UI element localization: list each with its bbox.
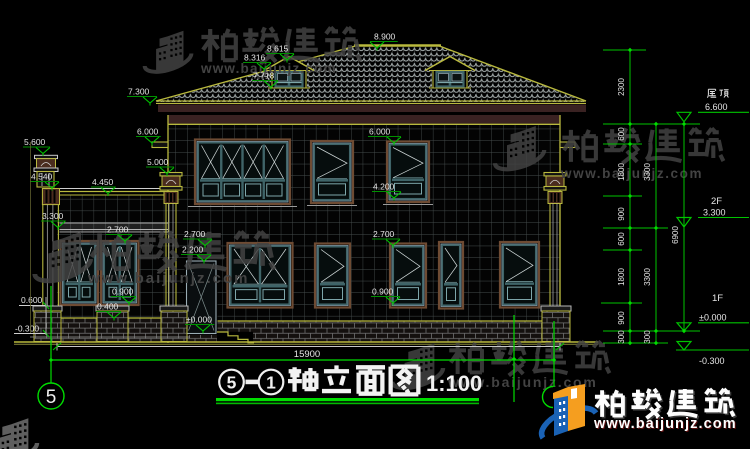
svg-text:-0.300: -0.300 bbox=[699, 356, 725, 366]
svg-text:5.000: 5.000 bbox=[147, 157, 169, 167]
svg-text:2.700: 2.700 bbox=[184, 229, 206, 239]
svg-text:3.300: 3.300 bbox=[703, 208, 726, 218]
svg-text:www.baijunjz.com: www.baijunjz.com bbox=[560, 166, 703, 181]
svg-text:600: 600 bbox=[617, 127, 626, 141]
svg-text:www.baijunjz.com: www.baijunjz.com bbox=[87, 270, 249, 287]
svg-text:±0.000: ±0.000 bbox=[186, 315, 212, 325]
svg-text:www.baijunjz.com: www.baijunjz.com bbox=[593, 416, 737, 432]
svg-text:0.600: 0.600 bbox=[21, 295, 43, 305]
svg-text:6.000: 6.000 bbox=[137, 127, 159, 137]
svg-text:4.540: 4.540 bbox=[31, 172, 53, 182]
svg-text:900: 900 bbox=[617, 311, 626, 325]
svg-text:3300: 3300 bbox=[643, 268, 652, 286]
svg-text:8.900: 8.900 bbox=[374, 32, 396, 42]
svg-text:7.718: 7.718 bbox=[253, 71, 275, 81]
svg-text:900: 900 bbox=[617, 207, 626, 221]
svg-text:1: 1 bbox=[266, 373, 276, 393]
svg-text:2.700: 2.700 bbox=[107, 225, 129, 235]
svg-text:5.600: 5.600 bbox=[24, 137, 46, 147]
svg-text:2.700: 2.700 bbox=[373, 229, 395, 239]
svg-text:2F: 2F bbox=[711, 196, 722, 207]
svg-text:0.900: 0.900 bbox=[112, 287, 134, 297]
svg-text:600: 600 bbox=[617, 232, 626, 246]
svg-text:5: 5 bbox=[227, 373, 237, 393]
svg-text:8.316: 8.316 bbox=[244, 53, 266, 63]
svg-text:5: 5 bbox=[46, 387, 57, 408]
svg-text:0.400: 0.400 bbox=[97, 302, 119, 312]
svg-text:15900: 15900 bbox=[294, 349, 320, 360]
svg-text:-0.300: -0.300 bbox=[15, 324, 39, 334]
svg-text:300: 300 bbox=[643, 330, 652, 344]
svg-text:1:100: 1:100 bbox=[426, 371, 482, 396]
svg-text:300: 300 bbox=[617, 330, 626, 344]
svg-text:2.200: 2.200 bbox=[182, 245, 204, 255]
svg-text:7.300: 7.300 bbox=[128, 87, 150, 97]
svg-text:1F: 1F bbox=[712, 293, 723, 304]
svg-text:8.615: 8.615 bbox=[267, 44, 289, 54]
svg-text:4.200: 4.200 bbox=[373, 182, 395, 192]
svg-text:0.900: 0.900 bbox=[372, 287, 394, 297]
svg-text:1800: 1800 bbox=[617, 268, 626, 286]
svg-text:3300: 3300 bbox=[643, 163, 652, 181]
svg-text:6.000: 6.000 bbox=[369, 127, 391, 137]
svg-text:4.450: 4.450 bbox=[92, 177, 114, 187]
svg-text:6.600: 6.600 bbox=[705, 102, 728, 112]
svg-text:3.300: 3.300 bbox=[42, 211, 64, 221]
svg-text:2300: 2300 bbox=[617, 78, 626, 96]
svg-text:1800: 1800 bbox=[617, 163, 626, 181]
svg-text:±0.000: ±0.000 bbox=[699, 313, 726, 323]
svg-text:6900: 6900 bbox=[671, 226, 680, 244]
